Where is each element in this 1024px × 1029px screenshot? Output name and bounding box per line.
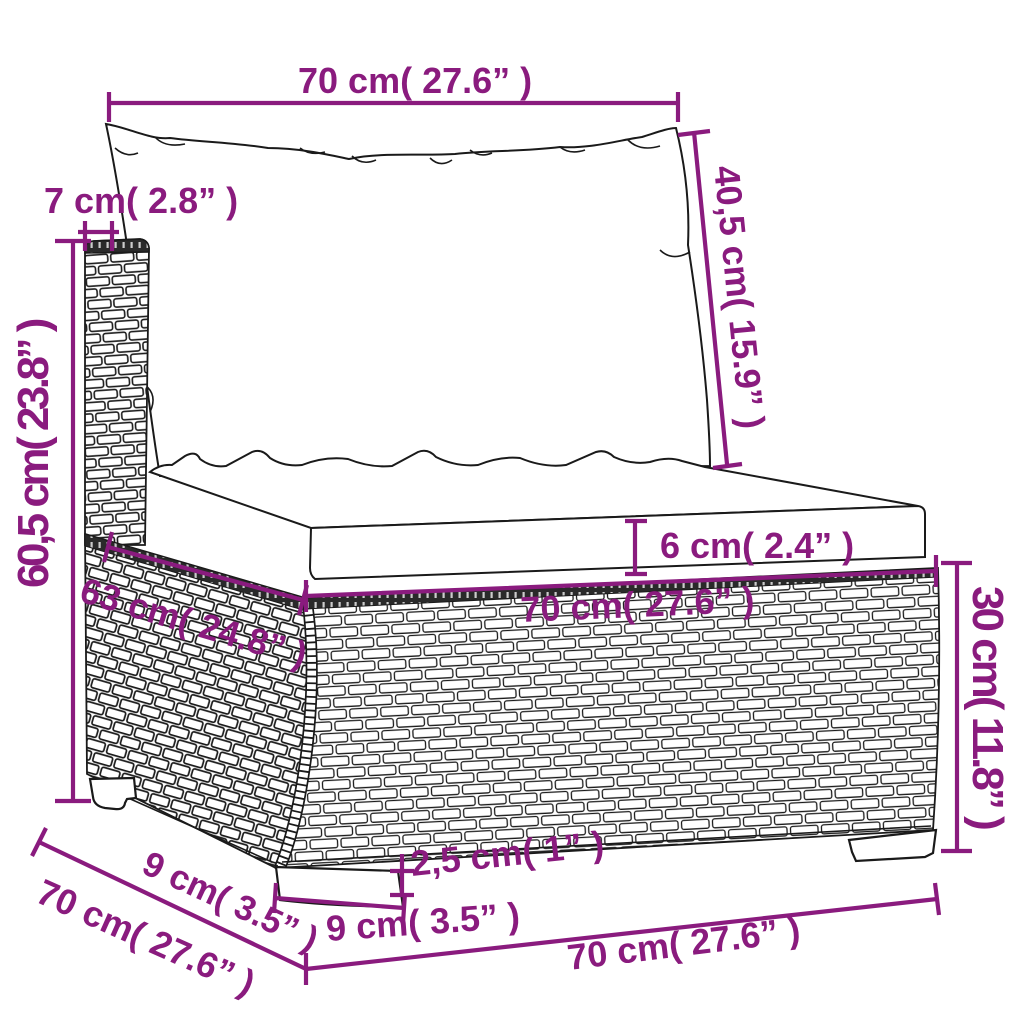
svg-text:60,5 cm( 23.8” ): 60,5 cm( 23.8” ) bbox=[9, 319, 58, 588]
svg-text:6 cm( 2.4” ): 6 cm( 2.4” ) bbox=[660, 525, 854, 566]
svg-text:7 cm( 2.8” ): 7 cm( 2.8” ) bbox=[44, 180, 238, 221]
svg-text:30 cm( 11.8” ): 30 cm( 11.8” ) bbox=[963, 586, 1012, 829]
svg-text:70 cm( 27.6” ): 70 cm( 27.6” ) bbox=[298, 60, 532, 101]
